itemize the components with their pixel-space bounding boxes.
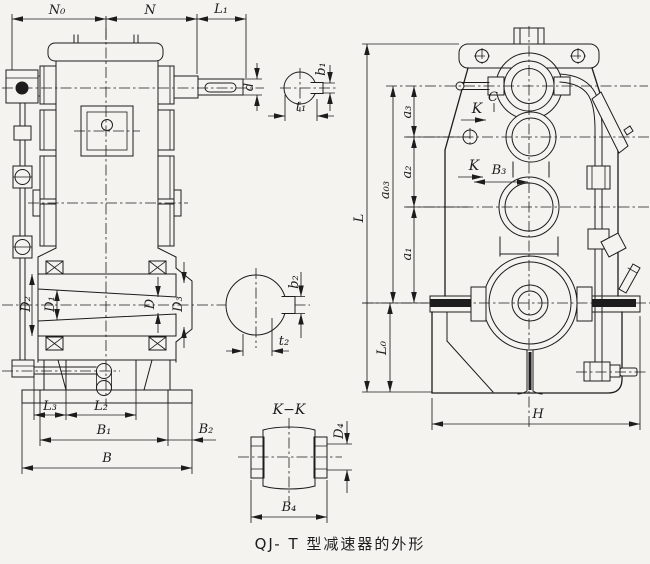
label-k-upper: K — [471, 101, 484, 117]
dim-label-a03: a₀₃ — [378, 181, 393, 199]
front-top-dimensions: N₀ N L₁ — [12, 2, 246, 78]
dim-label-d3-bore: D₃ — [171, 296, 186, 313]
figure-caption: QJ- T 型减速器的外形 — [255, 535, 426, 553]
front-base — [22, 360, 192, 403]
pipe-coupling — [587, 166, 610, 189]
dim-label-h: H — [531, 407, 544, 422]
dim-label-b1-key: b₁ — [314, 62, 329, 76]
dipstick-handle — [592, 92, 628, 153]
dim-label-n0: N₀ — [48, 3, 66, 18]
dim-label-a1: a₁ — [400, 248, 415, 261]
oil-pipe-assembly — [560, 74, 640, 381]
input-shaft: d — [174, 63, 262, 111]
side-plug — [619, 264, 640, 293]
front-housing: d — [6, 35, 262, 377]
technical-drawing: N₀ N L₁ — [0, 0, 650, 564]
front-bottom-dimensions: L₃ L₂ B₁ B₂ B — [22, 377, 216, 474]
dim-label-b3: B₃ — [491, 163, 507, 178]
dim-label-d-bore: D — [143, 298, 158, 310]
dim-label-d2-bore: D₂ — [19, 296, 34, 313]
dim-label-l: L — [352, 214, 367, 224]
oil-gauge-rod — [6, 70, 40, 377]
dim-label-b2-key: b₂ — [287, 275, 302, 289]
label-c: C — [488, 90, 498, 105]
dim-label-d-shaft: d — [242, 83, 257, 91]
key-section-1: b₁ t₁ — [268, 62, 338, 121]
dim-label-t1-key: t₁ — [296, 100, 306, 115]
dim-label-l3: L₃ — [42, 399, 57, 414]
drain-plug — [584, 362, 610, 381]
side-view: L a₀₃ L₀ a₃ a₂ a₁ — [352, 26, 650, 430]
inspection-cover — [74, 106, 140, 156]
dim-label-d1-bore: D₁ — [43, 296, 58, 313]
dim-label-l1: L₁ — [213, 2, 228, 17]
dim-label-n: N — [143, 3, 156, 18]
front-view: N₀ N L₁ — [2, 2, 310, 474]
dim-label-a2: a₂ — [400, 166, 415, 179]
dim-label-t2-key: t₂ — [279, 334, 289, 349]
kk-section: K−K D₄ B₄ — [238, 402, 352, 523]
dim-label-l0: L₀ — [375, 340, 390, 356]
dim-label-b2: B₂ — [198, 422, 214, 437]
dim-label-b1: B₁ — [96, 423, 112, 438]
section-title-kk: K−K — [272, 402, 307, 418]
dim-label-b4: B₄ — [281, 500, 297, 515]
dim-label-a3: a₃ — [400, 106, 415, 119]
dim-label-d4: D₄ — [332, 423, 347, 440]
side-left-dimensions: L a₀₃ L₀ a₃ a₂ a₁ — [352, 44, 470, 392]
label-k-lower: K — [468, 158, 481, 174]
key-section-2: b₂ t₂ — [226, 268, 305, 356]
dim-label-b: B — [101, 451, 112, 466]
